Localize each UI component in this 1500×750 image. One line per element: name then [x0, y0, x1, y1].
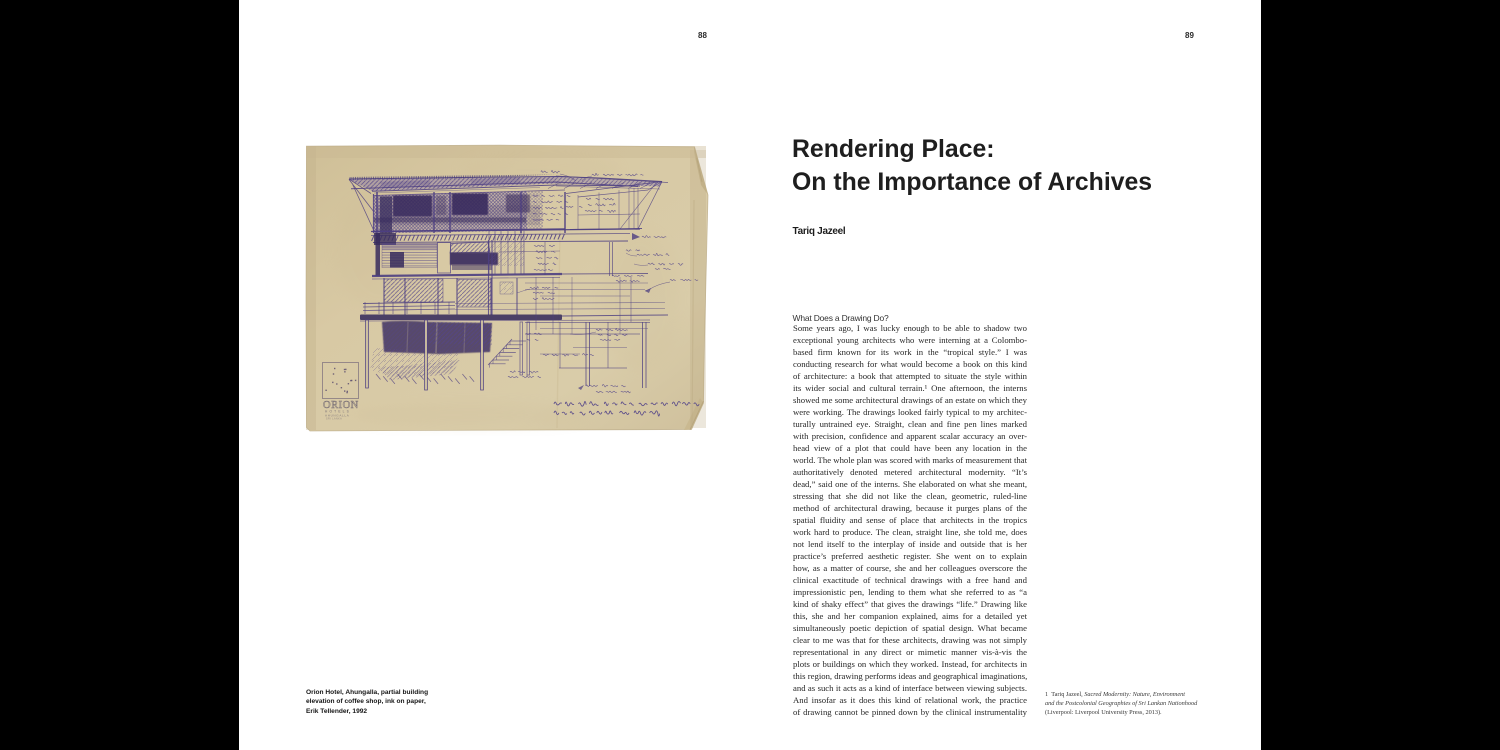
svg-text:SRI LANKA: SRI LANKA	[326, 418, 342, 421]
